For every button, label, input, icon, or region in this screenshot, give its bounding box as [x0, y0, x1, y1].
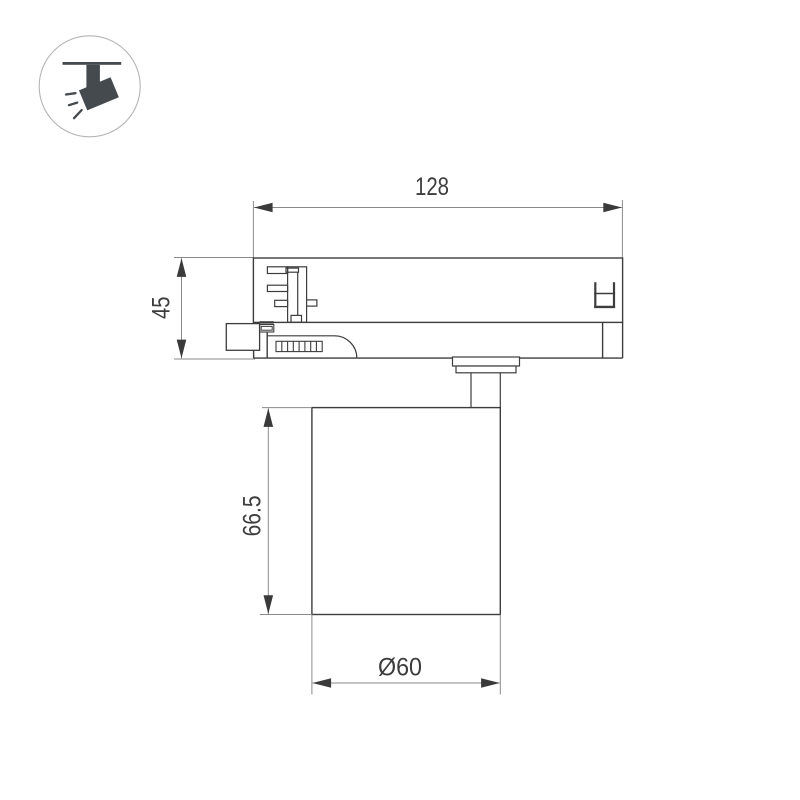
svg-text:Ø60: Ø60 [378, 653, 422, 681]
svg-text:45: 45 [148, 297, 176, 320]
svg-text:128: 128 [415, 173, 449, 201]
svg-text:66.5: 66.5 [239, 495, 267, 536]
